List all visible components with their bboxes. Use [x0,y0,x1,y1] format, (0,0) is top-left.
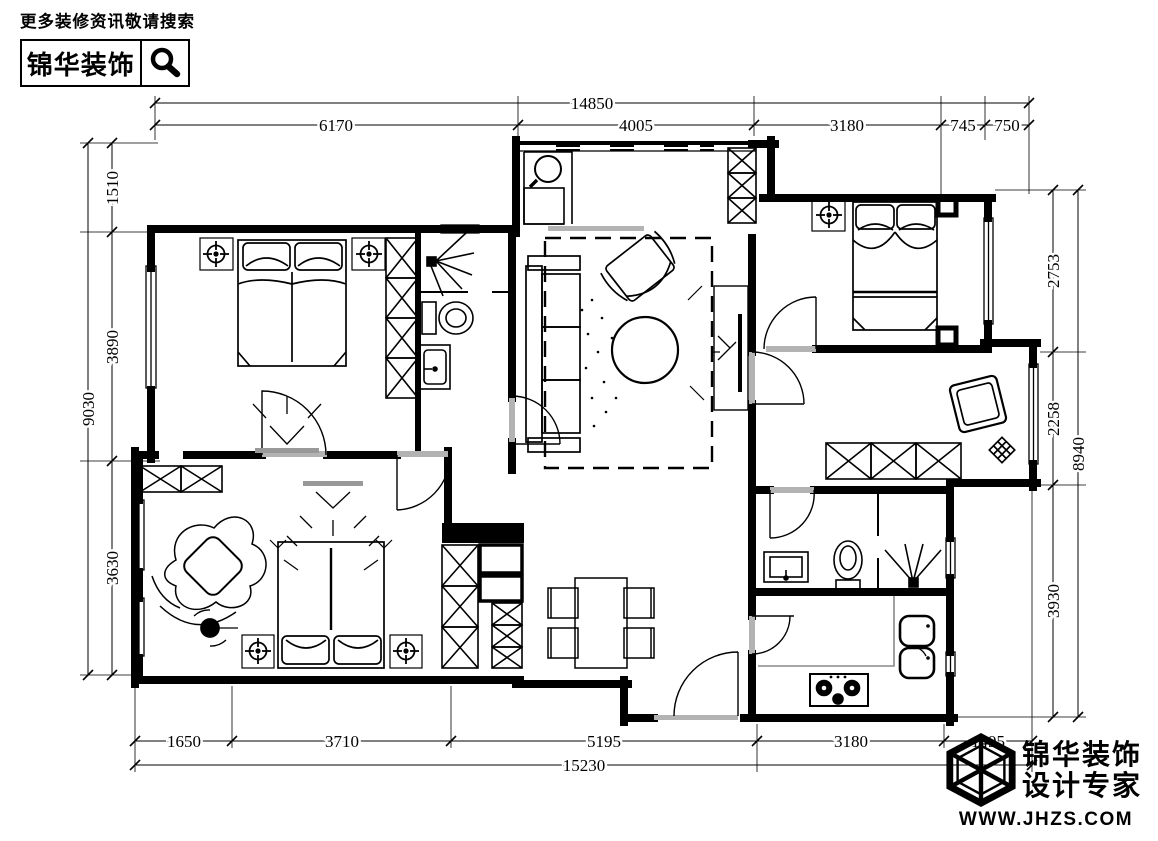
dim-right-overall: 8940 [1069,437,1088,471]
washbasin-icon [764,552,808,582]
floor-plan-drawing: 14850 6170 4005 3180 745 750 9030 1510 3… [0,0,1158,841]
desk-chair-icon [949,375,1007,433]
search-icon [142,41,188,85]
ceiling-light-rays [253,396,321,453]
bathroom1 [420,233,474,389]
ceiling-lamp-icon [816,202,842,228]
hall-cabinet [480,545,522,601]
ceiling-lamp-icon [356,241,382,267]
dim-bottom-seg: 3180 [834,732,868,751]
ceiling-light-rays [287,481,379,546]
brand-name: 锦华装饰 [22,41,140,85]
cushion-icon [180,533,245,598]
decor-dots [581,299,618,428]
door-thresholds [262,226,816,720]
armchair-icon [599,229,683,309]
bathroom2 [764,541,941,589]
dim-top-overall: 14850 [571,94,614,113]
footer-brand-line2: 设计专家 [1022,770,1142,801]
dim-bottom-seg: 3710 [325,732,359,751]
windows [134,143,1038,676]
dim-left-seg: 3630 [103,551,122,585]
cube-logo-icon [940,732,1022,808]
shower-icon [885,544,941,587]
dim-bottom-seg: 1650 [167,732,201,751]
dining-area [548,578,654,668]
footer-brand-line1: 锦华装饰 [1022,739,1142,770]
dim-top-seg: 6170 [319,116,353,135]
footer-brand-text: 锦华装饰 设计专家 [1022,739,1142,802]
dim-bottom-overall: 15230 [563,756,606,775]
sofa-icon [526,256,580,452]
shower-icon [427,233,474,296]
footer-website: WWW.JHZS.COM [940,809,1152,831]
ornament-icon [989,437,1014,462]
dim-top-seg: 750 [994,116,1020,135]
double-bed-icon [270,540,392,668]
ceiling-lamp-icon [203,241,229,267]
dim-right-seg: 2258 [1044,402,1063,436]
gas-stove-icon [810,674,868,706]
ceiling-lamp-icon [393,638,419,664]
bedroom3 [152,481,422,668]
dim-bottom-seg: 5195 [587,732,621,751]
door-swings [262,297,816,716]
dining-table-icon [575,578,627,668]
tv-cabinet-icon [712,286,748,410]
toilet-icon [834,541,862,589]
balcony-basin-icon [535,156,561,182]
dim-left-seg: 3890 [103,330,122,364]
kitchen [758,596,934,706]
dim-top-seg: 3180 [830,116,864,135]
bedroom2 [812,198,956,345]
dim-top-seg: 4005 [619,116,653,135]
bedroom1 [200,238,385,453]
dim-right-seg: 2753 [1044,254,1063,288]
balcony [524,152,572,224]
washbasin-icon [420,345,450,389]
double-bed-icon [853,202,937,330]
dim-top-seg: 745 [950,116,976,135]
plant-icon [152,517,266,625]
floor-plan-page: 更多装修资讯敬请搜索 锦华装饰 [0,0,1158,841]
header-tagline: 更多装修资讯敬请搜索 [20,8,195,32]
study [949,375,1015,463]
dim-right-seg: 3930 [1044,584,1063,618]
dim-left-seg: 1510 [103,171,122,205]
double-sink-icon [900,616,934,678]
double-bed-icon [238,240,346,366]
footer-logo: 锦华装饰 设计专家 WWW.JHZS.COM [940,732,1152,831]
header: 更多装修资讯敬请搜索 锦华装饰 [20,8,195,87]
brand-logo-box: 锦华装饰 [20,39,190,87]
round-table-icon [612,317,678,383]
dim-left-overall: 9030 [79,392,98,426]
ceiling-lamp-icon [245,638,271,664]
toilet-icon [422,302,473,334]
dining-chair-icon [548,588,654,658]
